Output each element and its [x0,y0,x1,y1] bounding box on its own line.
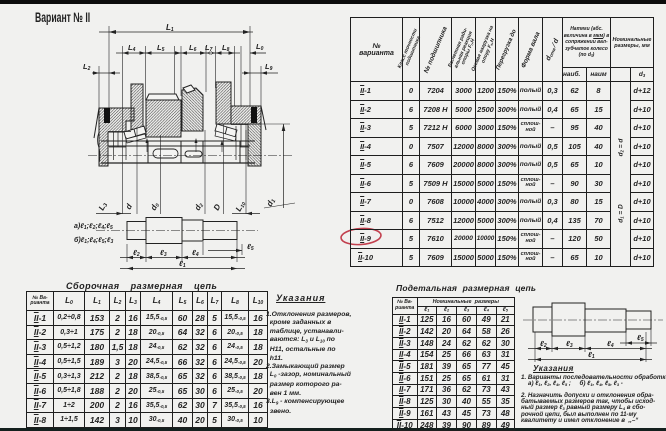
svg-text:ℓ3: ℓ3 [160,248,167,258]
svg-text:L9: L9 [265,62,273,72]
svg-text:а)ℓ1;ℓ2;ℓ4;ℓ5: а)ℓ1;ℓ2;ℓ4;ℓ5 [74,223,113,231]
svg-text:ℓ2: ℓ2 [133,248,140,258]
svg-text:L3: L3 [97,201,110,213]
svg-text:ℓ1: ℓ1 [179,259,186,269]
svg-text:ℓ5: ℓ5 [637,333,644,343]
svg-text:L10: L10 [234,199,248,213]
svg-text:L4: L4 [128,43,136,53]
svg-text:L5: L5 [157,43,165,53]
svg-text:ℓ3: ℓ3 [566,339,573,349]
svg-text:L1: L1 [166,23,174,33]
svg-text:ℓ1: ℓ1 [588,350,595,360]
svg-text:ℓ5: ℓ5 [247,242,254,252]
svg-text:б)ℓ1;ℓ4;ℓ5;ℓ3: б)ℓ1;ℓ4;ℓ5;ℓ3 [74,236,113,245]
svg-text:d0: d0 [149,201,162,213]
svg-text:L8: L8 [222,43,230,53]
svg-text:d: d [124,201,135,211]
svg-text:L6: L6 [189,43,197,53]
svg-text:L2: L2 [83,62,91,72]
svg-text:L7: L7 [205,43,213,53]
svg-text:L0: L0 [256,42,264,52]
svg-text:ℓ2: ℓ2 [540,339,547,349]
svg-text:ℓ4: ℓ4 [192,248,199,258]
svg-text:D: D [212,202,223,212]
svg-text:d2: d2 [193,201,206,213]
svg-text:ℓ4: ℓ4 [607,339,614,349]
